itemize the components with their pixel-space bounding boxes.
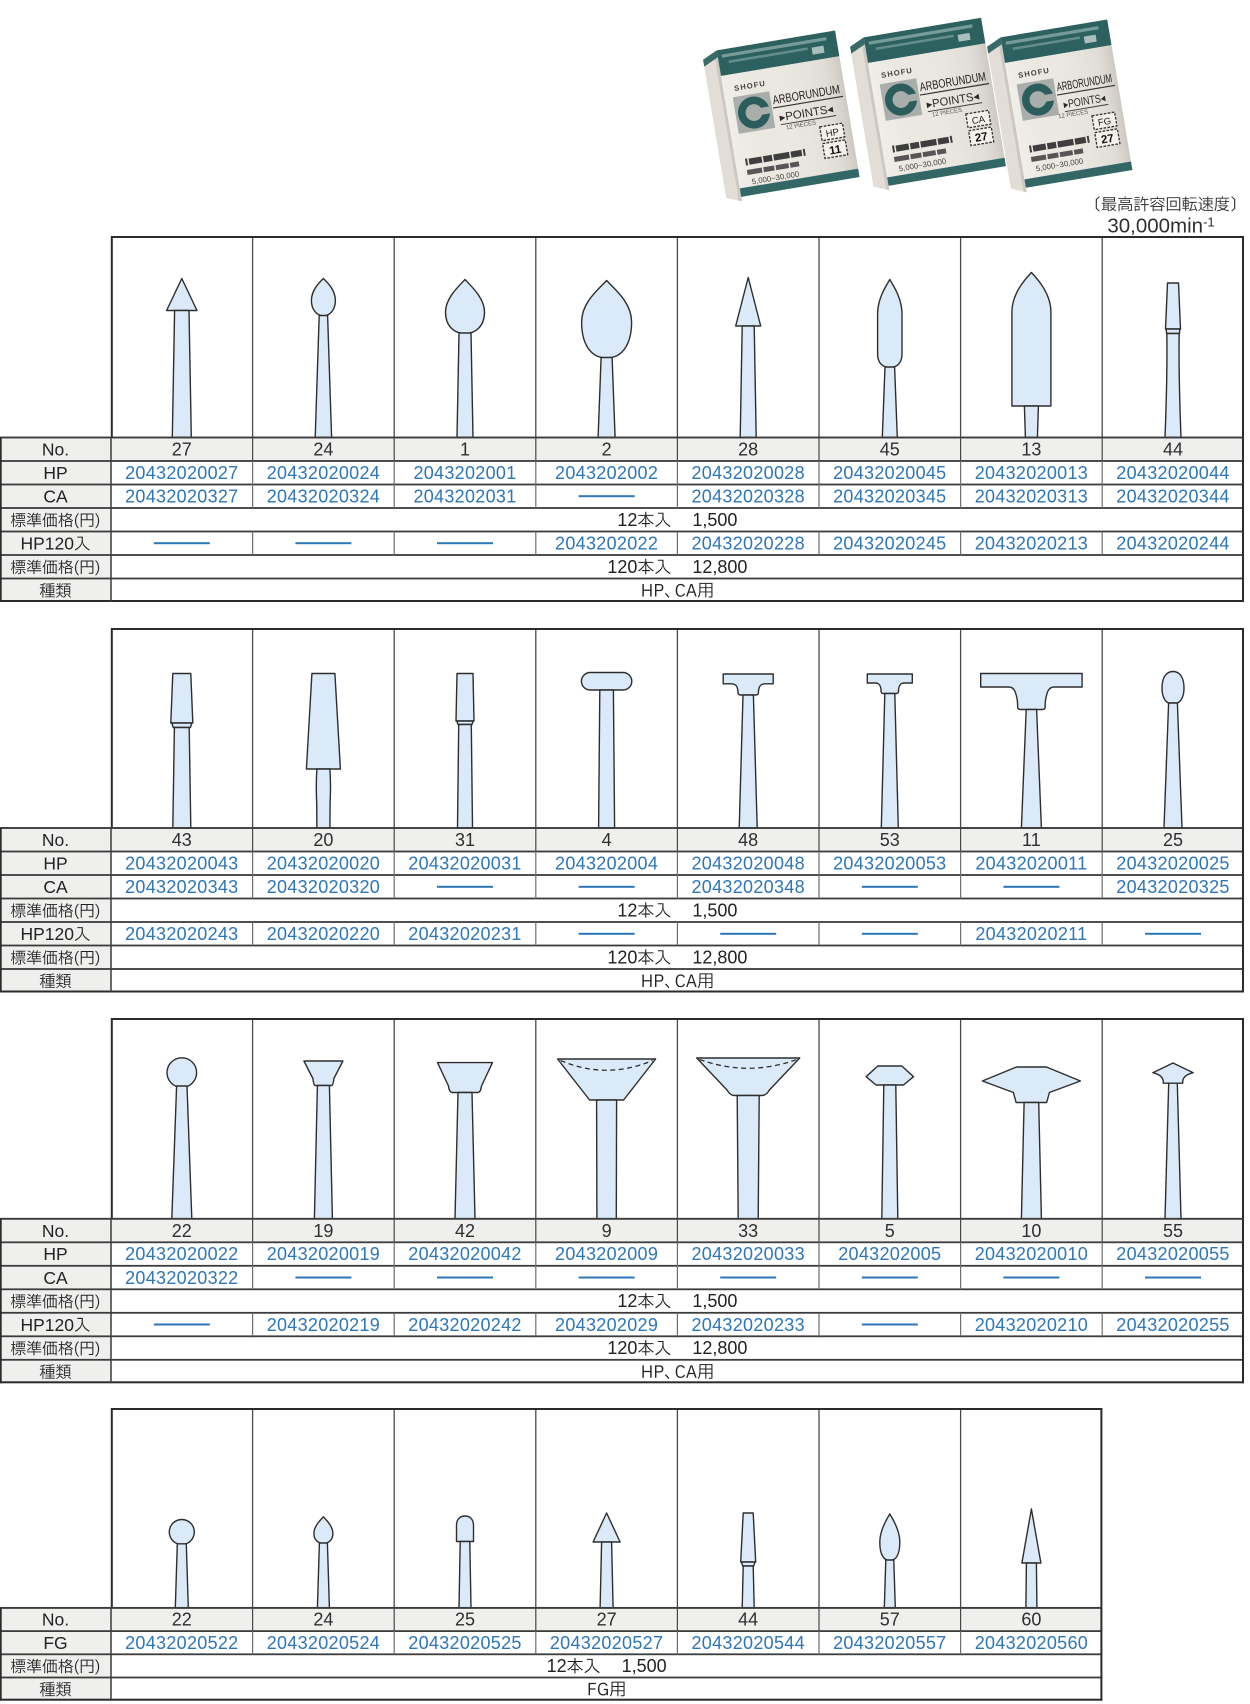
svg-text:20432020233: 20432020233 bbox=[691, 1315, 804, 1335]
svg-text:20432020031: 20432020031 bbox=[408, 854, 521, 874]
svg-text:1,500: 1,500 bbox=[692, 1291, 737, 1311]
svg-text:HP120: HP120 bbox=[21, 924, 75, 944]
svg-text:2043202022: 2043202022 bbox=[555, 534, 658, 554]
svg-text:20432020325: 20432020325 bbox=[1116, 877, 1229, 897]
svg-text:57: 57 bbox=[880, 1609, 900, 1629]
svg-text:CA: CA bbox=[971, 114, 986, 127]
svg-text:12,800: 12,800 bbox=[692, 1338, 747, 1358]
svg-text:CA: CA bbox=[43, 486, 68, 506]
svg-text:20432020522: 20432020522 bbox=[125, 1632, 238, 1652]
svg-text:HP: HP bbox=[43, 854, 67, 874]
svg-text:20432020228: 20432020228 bbox=[691, 534, 804, 554]
svg-text:9: 9 bbox=[602, 1221, 612, 1241]
svg-text:20432020028: 20432020028 bbox=[691, 463, 804, 483]
svg-text:43: 43 bbox=[172, 830, 192, 850]
svg-text:20432020320: 20432020320 bbox=[267, 877, 380, 897]
svg-text:20432020324: 20432020324 bbox=[267, 486, 380, 506]
svg-text:27: 27 bbox=[1100, 133, 1115, 147]
svg-text:2043202005: 2043202005 bbox=[838, 1244, 941, 1264]
svg-text:45: 45 bbox=[880, 439, 900, 459]
svg-text:27: 27 bbox=[597, 1609, 617, 1629]
svg-text:20: 20 bbox=[313, 830, 333, 850]
svg-text:20432020245: 20432020245 bbox=[833, 534, 946, 554]
svg-text:HP120: HP120 bbox=[21, 1315, 75, 1335]
svg-text:120: 120 bbox=[607, 1338, 637, 1358]
svg-text:2043202031: 2043202031 bbox=[413, 486, 516, 506]
svg-text:20432020243: 20432020243 bbox=[125, 924, 238, 944]
svg-text:2043202029: 2043202029 bbox=[555, 1315, 658, 1335]
svg-text:20432020525: 20432020525 bbox=[408, 1632, 521, 1652]
svg-text:22: 22 bbox=[172, 1221, 192, 1241]
svg-text:10: 10 bbox=[1021, 1221, 1041, 1241]
svg-text:19: 19 bbox=[313, 1221, 333, 1241]
svg-text:28: 28 bbox=[738, 439, 758, 459]
svg-text:20432020020: 20432020020 bbox=[267, 854, 380, 874]
svg-text:22: 22 bbox=[172, 1609, 192, 1629]
svg-text:44: 44 bbox=[1163, 439, 1183, 459]
svg-text:20432020044: 20432020044 bbox=[1116, 463, 1229, 483]
svg-text:No.: No. bbox=[42, 1609, 69, 1629]
svg-text:12: 12 bbox=[617, 510, 637, 530]
svg-text:20432020019: 20432020019 bbox=[267, 1244, 380, 1264]
svg-text:55: 55 bbox=[1163, 1221, 1183, 1241]
svg-text:20432020024: 20432020024 bbox=[267, 463, 380, 483]
svg-text:20432020524: 20432020524 bbox=[267, 1632, 380, 1652]
svg-text:20432020255: 20432020255 bbox=[1116, 1315, 1229, 1335]
svg-text:20432020011: 20432020011 bbox=[975, 854, 1087, 874]
svg-text:CA: CA bbox=[43, 1268, 68, 1288]
svg-text:12,800: 12,800 bbox=[692, 948, 747, 968]
svg-text:20432020211: 20432020211 bbox=[975, 924, 1087, 944]
svg-text:42: 42 bbox=[455, 1221, 475, 1241]
svg-text:1,500: 1,500 bbox=[692, 510, 737, 530]
svg-text:20432020327: 20432020327 bbox=[125, 486, 238, 506]
svg-text:No.: No. bbox=[42, 830, 69, 850]
svg-text:No.: No. bbox=[42, 439, 69, 459]
svg-text:2043202002: 2043202002 bbox=[555, 463, 658, 483]
svg-text:12: 12 bbox=[617, 1291, 637, 1311]
svg-text:44: 44 bbox=[738, 1609, 758, 1629]
svg-text:120: 120 bbox=[607, 557, 637, 577]
svg-text:20432020328: 20432020328 bbox=[691, 486, 804, 506]
svg-text:2043202001: 2043202001 bbox=[413, 463, 516, 483]
svg-text:20432020527: 20432020527 bbox=[550, 1632, 663, 1652]
svg-text:CA: CA bbox=[43, 877, 68, 897]
svg-text:1: 1 bbox=[460, 439, 470, 459]
svg-text:27: 27 bbox=[172, 439, 192, 459]
svg-text:25: 25 bbox=[1163, 830, 1183, 850]
svg-text:20432020348: 20432020348 bbox=[691, 877, 804, 897]
svg-text:20432020219: 20432020219 bbox=[267, 1315, 380, 1335]
svg-text:20432020322: 20432020322 bbox=[125, 1268, 238, 1288]
svg-text:20432020053: 20432020053 bbox=[833, 854, 946, 874]
svg-text:HP: HP bbox=[43, 463, 67, 483]
svg-text:13: 13 bbox=[1021, 439, 1041, 459]
svg-text:25: 25 bbox=[455, 1609, 475, 1629]
svg-text:HP: HP bbox=[43, 1244, 67, 1264]
svg-text:11: 11 bbox=[1022, 830, 1041, 850]
svg-text:FG: FG bbox=[43, 1632, 67, 1652]
svg-text:HP: HP bbox=[825, 127, 840, 140]
svg-text:12,800: 12,800 bbox=[692, 557, 747, 577]
svg-text:12: 12 bbox=[617, 901, 637, 921]
svg-text:20432020210: 20432020210 bbox=[975, 1315, 1088, 1335]
svg-text:HP120: HP120 bbox=[21, 534, 75, 554]
svg-text:2043202004: 2043202004 bbox=[555, 854, 658, 874]
svg-text:20432020010: 20432020010 bbox=[975, 1244, 1088, 1264]
svg-text:20432020220: 20432020220 bbox=[267, 924, 380, 944]
svg-text:20432020313: 20432020313 bbox=[975, 486, 1088, 506]
svg-text:2043202009: 2043202009 bbox=[555, 1244, 658, 1264]
svg-text:31: 31 bbox=[455, 830, 475, 850]
svg-text:FG: FG bbox=[1097, 116, 1112, 129]
svg-text:20432020345: 20432020345 bbox=[833, 486, 946, 506]
svg-text:2: 2 bbox=[602, 439, 612, 459]
svg-text:20432020033: 20432020033 bbox=[691, 1244, 804, 1264]
svg-text:1,500: 1,500 bbox=[622, 1656, 667, 1676]
svg-text:20432020244: 20432020244 bbox=[1116, 534, 1229, 554]
svg-text:1,500: 1,500 bbox=[692, 901, 737, 921]
svg-text:20432020025: 20432020025 bbox=[1116, 854, 1229, 874]
svg-text:120: 120 bbox=[607, 948, 637, 968]
svg-text:27: 27 bbox=[974, 131, 989, 145]
svg-text:24: 24 bbox=[313, 1609, 333, 1629]
svg-text:20432020242: 20432020242 bbox=[408, 1315, 521, 1335]
svg-text:20432020560: 20432020560 bbox=[975, 1632, 1088, 1652]
svg-text:20432020027: 20432020027 bbox=[125, 463, 238, 483]
svg-text:12: 12 bbox=[547, 1656, 567, 1676]
svg-text:20432020344: 20432020344 bbox=[1116, 486, 1229, 506]
svg-text:20432020043: 20432020043 bbox=[125, 854, 238, 874]
svg-text:30,000min-1: 30,000min-1 bbox=[1107, 215, 1214, 238]
svg-text:20432020045: 20432020045 bbox=[833, 463, 946, 483]
svg-text:No.: No. bbox=[42, 1221, 69, 1241]
svg-text:20432020557: 20432020557 bbox=[833, 1632, 946, 1652]
svg-text:20432020048: 20432020048 bbox=[691, 854, 804, 874]
svg-text:20432020013: 20432020013 bbox=[975, 463, 1088, 483]
svg-text:24: 24 bbox=[313, 439, 333, 459]
svg-text:20432020022: 20432020022 bbox=[125, 1244, 238, 1264]
svg-text:20432020343: 20432020343 bbox=[125, 877, 238, 897]
svg-text:4: 4 bbox=[602, 830, 612, 850]
svg-text:5: 5 bbox=[885, 1221, 895, 1241]
svg-text:20432020042: 20432020042 bbox=[408, 1244, 521, 1264]
svg-text:20432020231: 20432020231 bbox=[408, 924, 521, 944]
svg-text:53: 53 bbox=[880, 830, 900, 850]
svg-text:20432020544: 20432020544 bbox=[691, 1632, 804, 1652]
svg-text:20432020213: 20432020213 bbox=[975, 534, 1088, 554]
svg-text:48: 48 bbox=[738, 830, 758, 850]
svg-text:20432020055: 20432020055 bbox=[1116, 1244, 1229, 1264]
svg-text:60: 60 bbox=[1021, 1609, 1041, 1629]
svg-text:33: 33 bbox=[738, 1221, 758, 1241]
